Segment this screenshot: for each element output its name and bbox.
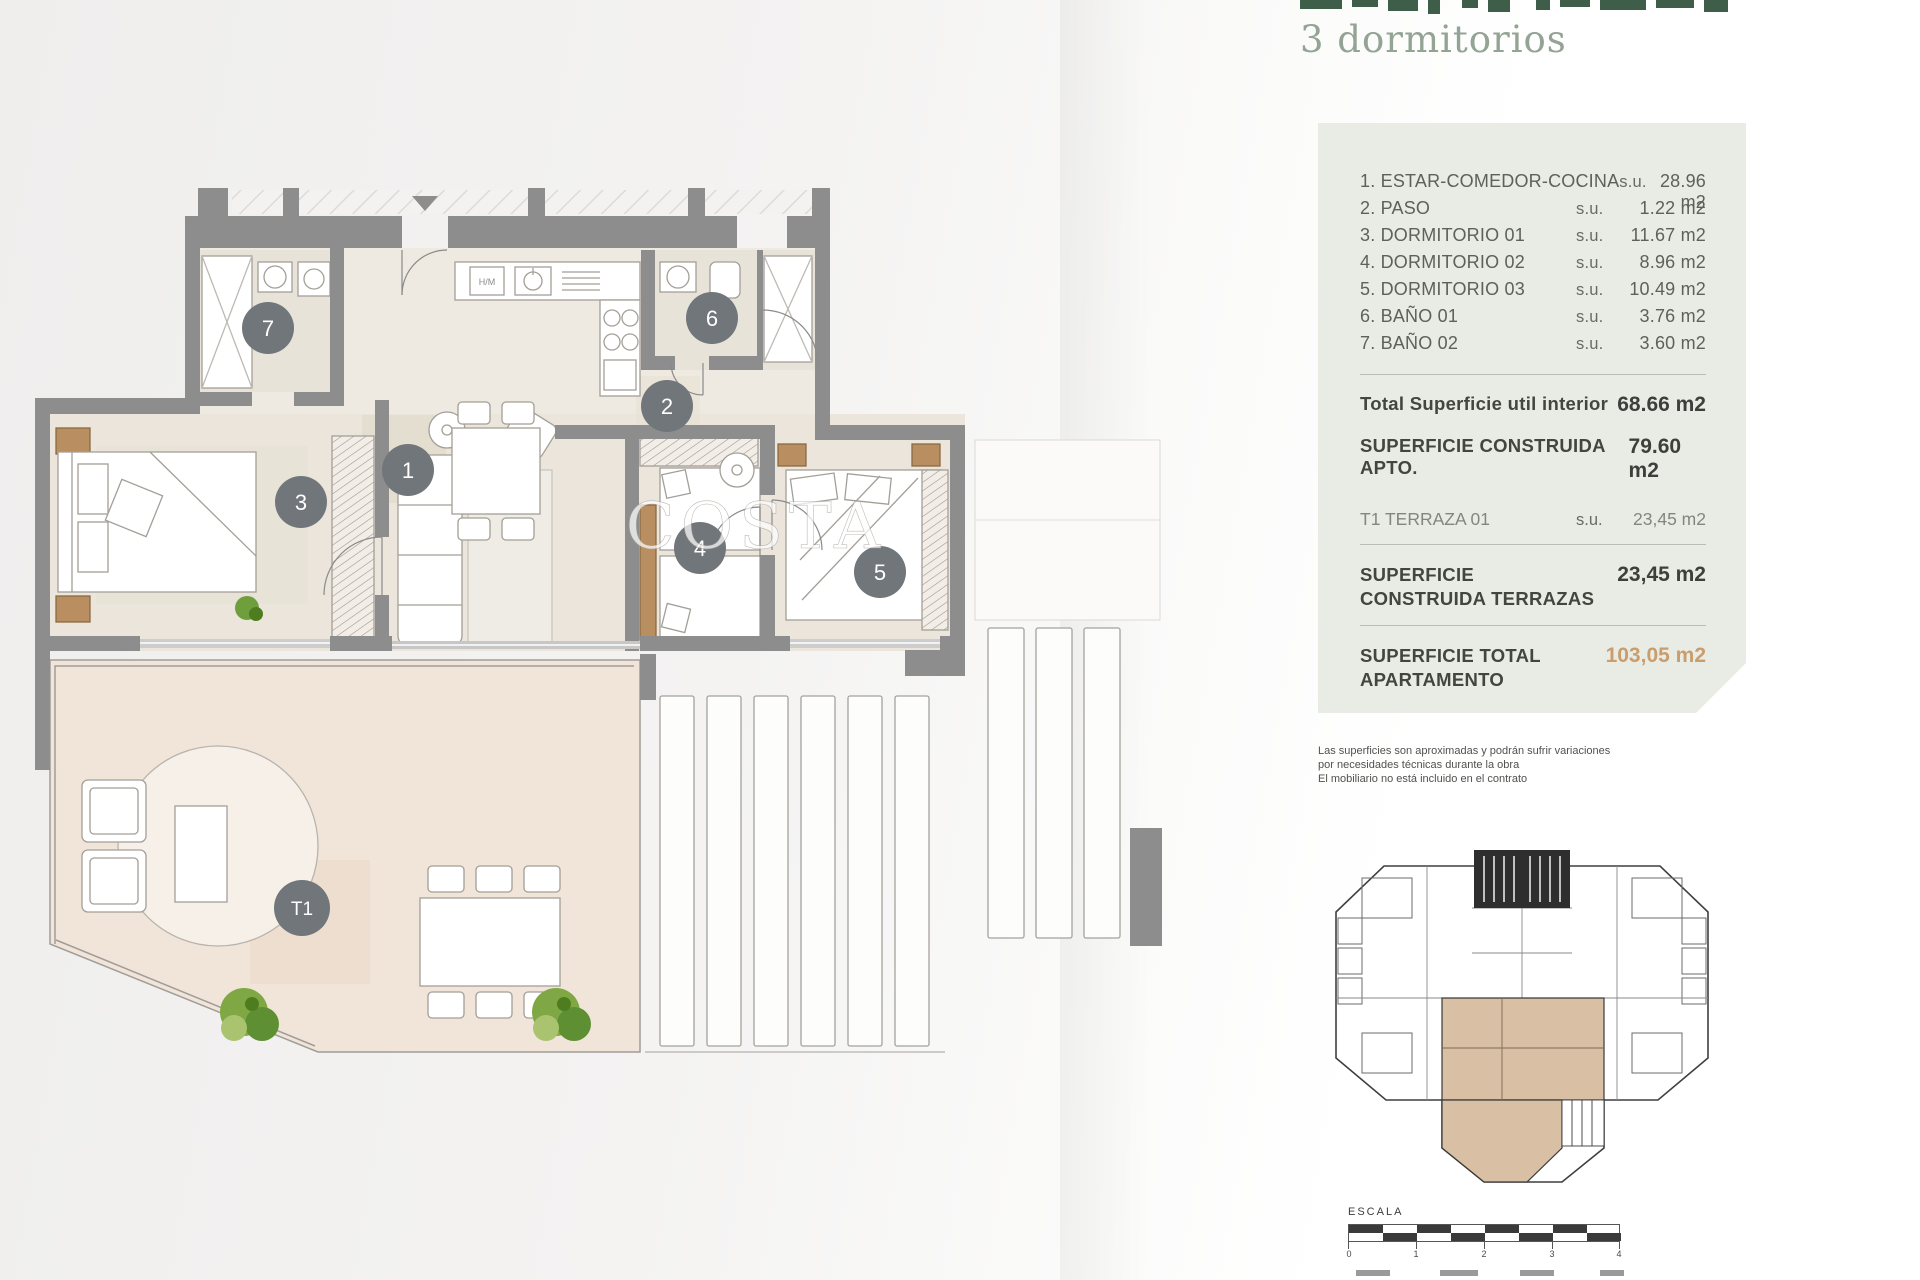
construida-apto-row: SUPERFICIE CONSTRUIDA APTO. 79.60 m2 bbox=[1360, 435, 1706, 483]
badge-room-6: 6 bbox=[686, 292, 738, 344]
total-util-row: Total Superficie util interior 68.66 m2 bbox=[1360, 393, 1706, 417]
room-value: 11.67 m2 bbox=[1618, 225, 1706, 246]
room-name: 5. DORMITORIO 03 bbox=[1360, 279, 1576, 300]
room-row: 6. BAÑO 01 s.u. 3.76 m2 bbox=[1360, 306, 1706, 333]
terraza-row: T1 TERRAZA 01 s.u. 23,45 m2 bbox=[1360, 509, 1706, 530]
room-unit: s.u. bbox=[1619, 173, 1647, 192]
svg-text:7: 7 bbox=[262, 316, 274, 341]
room-unit: s.u. bbox=[1576, 335, 1618, 354]
scale-ticks: 0 1 2 3 4 bbox=[1348, 1242, 1622, 1258]
room-unit: s.u. bbox=[1576, 200, 1618, 219]
scale-label: ESCALA bbox=[1348, 1206, 1648, 1218]
watermark: COSTA bbox=[626, 490, 887, 564]
construida-apto-label: SUPERFICIE CONSTRUIDA APTO. bbox=[1360, 435, 1629, 479]
badge-room-2: 2 bbox=[641, 380, 693, 432]
scale-bar bbox=[1348, 1224, 1620, 1242]
scale-tick-label: 2 bbox=[1481, 1249, 1486, 1259]
roof-overhang-hatch bbox=[232, 190, 812, 214]
room-value: 1.22 m2 bbox=[1618, 198, 1706, 219]
construida-terrazas-value: 23,45 m2 bbox=[1617, 563, 1706, 587]
badge-room-1: 1 bbox=[382, 444, 434, 496]
panel-divider bbox=[1360, 625, 1706, 626]
construida-terrazas-row: SUPERFICIE CONSTRUIDA TERRAZAS 23,45 m2 bbox=[1360, 563, 1706, 611]
total-apartamento-label: SUPERFICIE TOTAL APARTAMENTO bbox=[1360, 644, 1600, 692]
building-key-plan bbox=[1322, 848, 1722, 1193]
surface-info-panel: 1. ESTAR-COMEDOR-COCINA s.u. 28.96 m2 2.… bbox=[1318, 123, 1746, 713]
wardrobe-bedroom3 bbox=[332, 436, 374, 640]
room-name: 7. BAÑO 02 bbox=[1360, 333, 1576, 354]
terraza-value: 23,45 m2 bbox=[1618, 509, 1706, 530]
total-util-label: Total Superficie util interior bbox=[1360, 393, 1608, 415]
disclaimer-line: por necesidades técnicas durante la obra bbox=[1318, 758, 1738, 772]
room-unit: s.u. bbox=[1576, 281, 1618, 300]
scale-footnote-clipped bbox=[1348, 1270, 1628, 1278]
brochure-page: { "header": { "subtitle": "3 dormitorios… bbox=[0, 0, 1920, 1280]
badge-terrace-t1: T1 bbox=[274, 880, 330, 936]
room-name: 6. BAÑO 01 bbox=[1360, 306, 1576, 327]
room-value: 3.60 m2 bbox=[1618, 333, 1706, 354]
apartment-floor-plan: 1 2 3 4 5 6 7 T1 H/M COSTA bbox=[0, 0, 1200, 1100]
pergola-slats bbox=[645, 628, 1120, 1052]
room-name: 3. DORMITORIO 01 bbox=[1360, 225, 1576, 246]
terraza-label: T1 TERRAZA 01 bbox=[1360, 509, 1576, 530]
construida-terrazas-label: SUPERFICIE CONSTRUIDA TERRAZAS bbox=[1360, 563, 1600, 611]
svg-text:T1: T1 bbox=[291, 899, 313, 920]
room-row: 7. BAÑO 02 s.u. 3.60 m2 bbox=[1360, 333, 1706, 360]
svg-text:1: 1 bbox=[402, 458, 414, 483]
keyplan-core bbox=[1474, 850, 1570, 908]
room-value: 10.49 m2 bbox=[1618, 279, 1706, 300]
scale-tick-label: 3 bbox=[1549, 1249, 1554, 1259]
badge-room-7: 7 bbox=[242, 302, 294, 354]
room-value: 8.96 m2 bbox=[1618, 252, 1706, 273]
room-name: 4. DORMITORIO 02 bbox=[1360, 252, 1576, 273]
badge-room-3: 3 bbox=[275, 476, 327, 528]
room-name: 1. ESTAR-COMEDOR-COCINA bbox=[1360, 171, 1619, 192]
svg-text:2: 2 bbox=[661, 394, 673, 419]
page-subtitle: 3 dormitorios bbox=[1300, 18, 1800, 61]
scale-tick-label: 0 bbox=[1346, 1249, 1351, 1259]
svg-text:6: 6 bbox=[706, 306, 718, 331]
room-row: 3. DORMITORIO 01 s.u. 11.67 m2 bbox=[1360, 225, 1706, 252]
scale-bar-block: ESCALA 0 1 2 3 4 bbox=[1348, 1206, 1648, 1278]
room-unit: s.u. bbox=[1576, 254, 1618, 273]
disclaimer: Las superficies son aproximadas y podrán… bbox=[1318, 744, 1738, 786]
clipped-title bbox=[1300, 0, 1760, 15]
room-row: 4. DORMITORIO 02 s.u. 8.96 m2 bbox=[1360, 252, 1706, 279]
total-apartamento-row: SUPERFICIE TOTAL APARTAMENTO 103,05 m2 bbox=[1360, 644, 1706, 692]
disclaimer-line: El mobiliario no está incluido en el con… bbox=[1318, 772, 1738, 786]
kitchen-appliance-label: H/M bbox=[479, 277, 496, 287]
total-apartamento-value: 103,05 m2 bbox=[1606, 644, 1706, 668]
room-unit: s.u. bbox=[1576, 308, 1618, 327]
total-util-value: 68.66 m2 bbox=[1617, 393, 1706, 417]
svg-text:3: 3 bbox=[295, 490, 307, 515]
panel-divider bbox=[1360, 544, 1706, 545]
panel-divider bbox=[1360, 374, 1706, 375]
room-row: 1. ESTAR-COMEDOR-COCINA s.u. 28.96 m2 bbox=[1360, 171, 1706, 198]
room-unit: s.u. bbox=[1576, 227, 1618, 246]
scale-tick-label: 1 bbox=[1413, 1249, 1418, 1259]
scale-tick-label: 4 bbox=[1616, 1249, 1621, 1259]
room-value: 3.76 m2 bbox=[1618, 306, 1706, 327]
construida-apto-value: 79.60 m2 bbox=[1629, 435, 1706, 483]
room-name: 2. PASO bbox=[1360, 198, 1576, 219]
room-row: 5. DORMITORIO 03 s.u. 10.49 m2 bbox=[1360, 279, 1706, 306]
room-row: 2. PASO s.u. 1.22 m2 bbox=[1360, 198, 1706, 225]
terraza-unit: s.u. bbox=[1576, 511, 1618, 530]
disclaimer-line: Las superficies son aproximadas y podrán… bbox=[1318, 744, 1738, 758]
